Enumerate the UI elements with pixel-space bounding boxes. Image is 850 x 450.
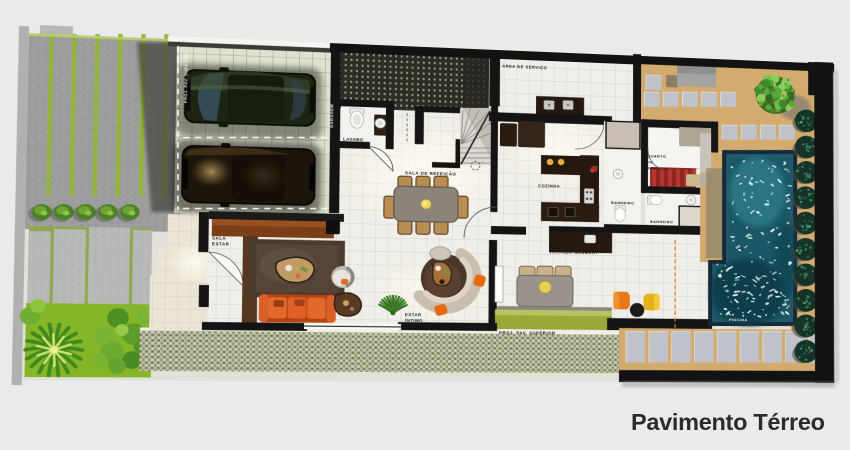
svg-text:SERVIÇO: SERVIÇO xyxy=(647,165,668,170)
svg-text:PROJ. PAV. SUPERIOR: PROJ. PAV. SUPERIOR xyxy=(183,52,189,103)
svg-text:COZINHA: COZINHA xyxy=(538,183,560,188)
svg-text:SALA: SALA xyxy=(212,236,227,241)
svg-text:VARANDA GOUMERT: VARANDA GOUMERT xyxy=(549,250,598,255)
svg-text:GARAGEM: GARAGEM xyxy=(329,104,334,128)
svg-text:PROJ. PAV. SUPERIOR: PROJ. PAV. SUPERIOR xyxy=(499,330,556,335)
svg-text:BANHEIRO: BANHEIRO xyxy=(650,219,673,224)
svg-text:QUARTO: QUARTO xyxy=(647,154,666,159)
svg-text:PISCINA: PISCINA xyxy=(729,318,747,323)
svg-text:DE: DE xyxy=(647,159,653,164)
svg-text:ESTAR: ESTAR xyxy=(212,242,230,247)
svg-text:BANHEIRO: BANHEIRO xyxy=(611,200,634,205)
svg-text:LAVABO: LAVABO xyxy=(343,137,364,142)
svg-text:ESTAR: ESTAR xyxy=(405,312,422,317)
